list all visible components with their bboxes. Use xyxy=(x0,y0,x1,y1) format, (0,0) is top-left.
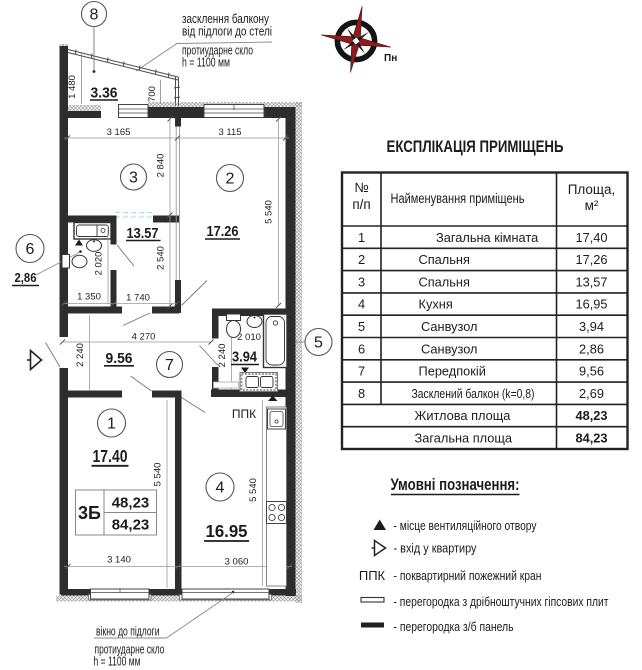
svg-text:ППК: ППК xyxy=(232,407,256,421)
svg-text:ППК: ППК xyxy=(359,568,386,583)
svg-text:- поквартирний пожежний кран: - поквартирний пожежний кран xyxy=(394,568,542,583)
svg-text:м²: м² xyxy=(585,198,599,213)
svg-text:6: 6 xyxy=(358,341,365,356)
svg-text:Засклений балкон (k=0,8): Засклений балкон (k=0,8) xyxy=(412,386,535,401)
svg-text:48,23: 48,23 xyxy=(575,408,607,423)
svg-text:4 270: 4 270 xyxy=(132,332,156,343)
svg-text:4: 4 xyxy=(358,297,365,312)
svg-text:17.40: 17.40 xyxy=(93,446,128,466)
svg-text:5: 5 xyxy=(358,319,365,334)
svg-text:Житлова площа: Житлова площа xyxy=(415,408,512,423)
svg-text:13.57: 13.57 xyxy=(127,225,159,242)
svg-text:16,95: 16,95 xyxy=(575,297,607,312)
svg-text:від підлоги до стелі: від підлоги до стелі xyxy=(182,24,272,39)
svg-text:- місце вентиляційного отвору: - місце вентиляційного отвору xyxy=(394,518,537,533)
svg-text:3: 3 xyxy=(129,170,138,187)
svg-text:2,86: 2,86 xyxy=(579,341,604,356)
svg-text:2 840: 2 840 xyxy=(156,154,167,178)
svg-text:700: 700 xyxy=(147,86,158,102)
svg-text:7: 7 xyxy=(358,364,365,379)
svg-text:2: 2 xyxy=(226,171,235,188)
svg-text:3 115: 3 115 xyxy=(218,127,241,138)
svg-text:6: 6 xyxy=(26,241,35,258)
svg-text:Умовні позначення:: Умовні позначення: xyxy=(391,475,520,494)
svg-text:5 540: 5 540 xyxy=(248,478,259,502)
svg-text:2,86: 2,86 xyxy=(15,270,37,285)
svg-text:9.56: 9.56 xyxy=(106,350,133,367)
svg-text:1: 1 xyxy=(358,230,365,245)
svg-text:3: 3 xyxy=(358,274,365,289)
svg-text:3,94: 3,94 xyxy=(579,319,604,334)
svg-text:Спальня: Спальня xyxy=(419,274,470,289)
svg-text:16.95: 16.95 xyxy=(206,521,248,541)
svg-text:2,69: 2,69 xyxy=(579,386,604,401)
svg-text:8: 8 xyxy=(90,7,99,24)
svg-text:5 540: 5 540 xyxy=(153,463,164,487)
svg-text:17,26: 17,26 xyxy=(575,252,607,267)
svg-text:2 240: 2 240 xyxy=(217,344,228,368)
svg-text:1 740: 1 740 xyxy=(126,293,150,304)
svg-text:3.36: 3.36 xyxy=(91,85,118,102)
svg-text:13,57: 13,57 xyxy=(575,274,607,289)
svg-text:5 540: 5 540 xyxy=(264,200,275,224)
svg-text:7: 7 xyxy=(165,357,174,374)
svg-text:3 060: 3 060 xyxy=(225,557,249,568)
svg-text:Загальна площа: Загальна площа xyxy=(415,431,513,446)
svg-text:3Б: 3Б xyxy=(78,503,101,523)
svg-text:h = 1100 мм: h = 1100 мм xyxy=(182,55,230,70)
svg-text:48,23: 48,23 xyxy=(112,495,150,512)
svg-text:5: 5 xyxy=(314,335,323,352)
svg-text:3.94: 3.94 xyxy=(232,349,258,366)
svg-text:84,23: 84,23 xyxy=(575,431,607,446)
svg-text:Загальна кімната: Загальна кімната xyxy=(436,230,539,245)
svg-text:Найменування приміщень: Найменування приміщень xyxy=(391,191,525,206)
svg-text:2: 2 xyxy=(358,252,365,267)
svg-text:Пн: Пн xyxy=(384,53,397,64)
svg-text:9,56: 9,56 xyxy=(579,364,604,379)
svg-text:4: 4 xyxy=(216,480,225,497)
svg-text:Санвузол: Санвузол xyxy=(421,341,478,356)
svg-text:Санвузол: Санвузол xyxy=(421,319,478,334)
svg-text:17,40: 17,40 xyxy=(575,230,607,245)
svg-text:1 480: 1 480 xyxy=(67,75,78,99)
svg-text:Кухня: Кухня xyxy=(419,297,453,312)
svg-text:84,23: 84,23 xyxy=(112,517,150,534)
svg-text:17.26: 17.26 xyxy=(207,223,239,240)
svg-text:8: 8 xyxy=(358,386,365,401)
svg-text:- перегородка з дрібноштучних: - перегородка з дрібноштучних гіпсових п… xyxy=(394,594,609,609)
svg-text:2 540: 2 540 xyxy=(156,246,167,270)
svg-text:2 020: 2 020 xyxy=(94,252,105,276)
svg-text:Передпокій: Передпокій xyxy=(419,364,486,379)
svg-text:- вхід у квартиру: - вхід у квартиру xyxy=(394,541,477,556)
svg-text:п/п: п/п xyxy=(352,197,370,212)
svg-text:3 140: 3 140 xyxy=(107,555,131,566)
svg-text:1: 1 xyxy=(107,416,116,433)
svg-text:вікно до підлоги: вікно до підлоги xyxy=(96,624,160,639)
svg-text:3 165: 3 165 xyxy=(107,127,131,138)
svg-text:- перегородка з/б панель: - перегородка з/б панель xyxy=(394,619,514,634)
svg-text:ЕКСПЛІКАЦІЯ ПРИМІЩЕНЬ: ЕКСПЛІКАЦІЯ ПРИМІЩЕНЬ xyxy=(387,137,564,156)
svg-text:2 010: 2 010 xyxy=(237,332,261,343)
svg-text:Спальня: Спальня xyxy=(419,252,470,267)
svg-text:№: № xyxy=(354,180,368,195)
svg-text:h = 1100 мм: h = 1100 мм xyxy=(94,654,141,669)
svg-text:1 350: 1 350 xyxy=(77,292,101,303)
svg-text:2 240: 2 240 xyxy=(75,343,86,367)
svg-text:Площа,: Площа, xyxy=(568,182,616,197)
